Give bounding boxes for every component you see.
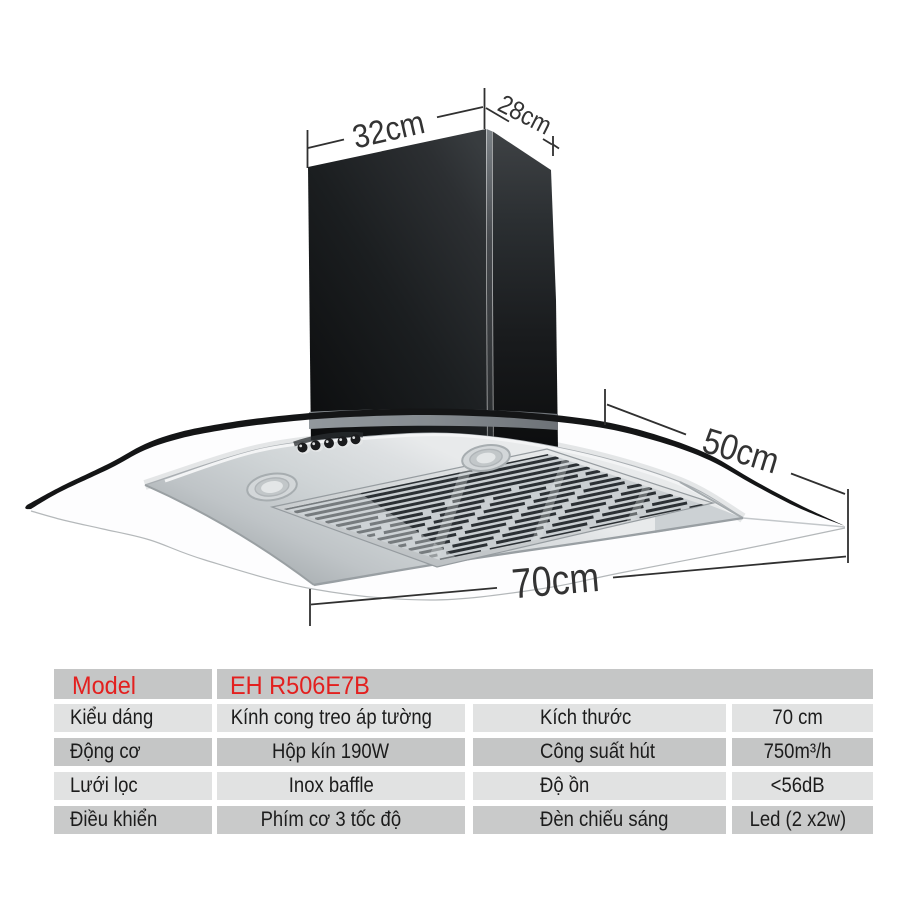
svg-text:28cm: 28cm	[493, 90, 556, 141]
svg-text:70cm: 70cm	[510, 554, 601, 608]
